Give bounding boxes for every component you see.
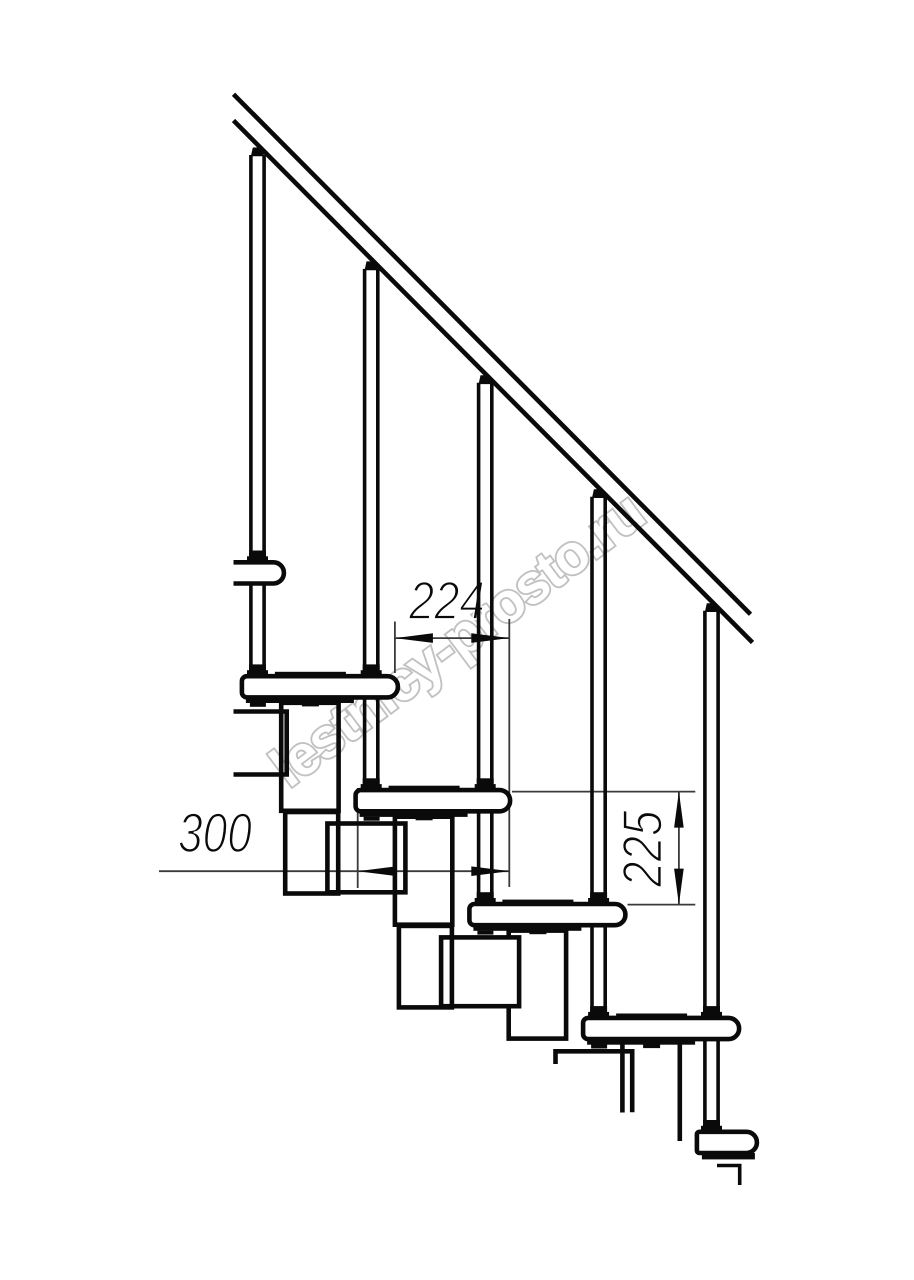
svg-text:300: 300 [178, 801, 252, 864]
svg-text:225: 225 [611, 810, 673, 888]
svg-text:224: 224 [408, 570, 485, 631]
